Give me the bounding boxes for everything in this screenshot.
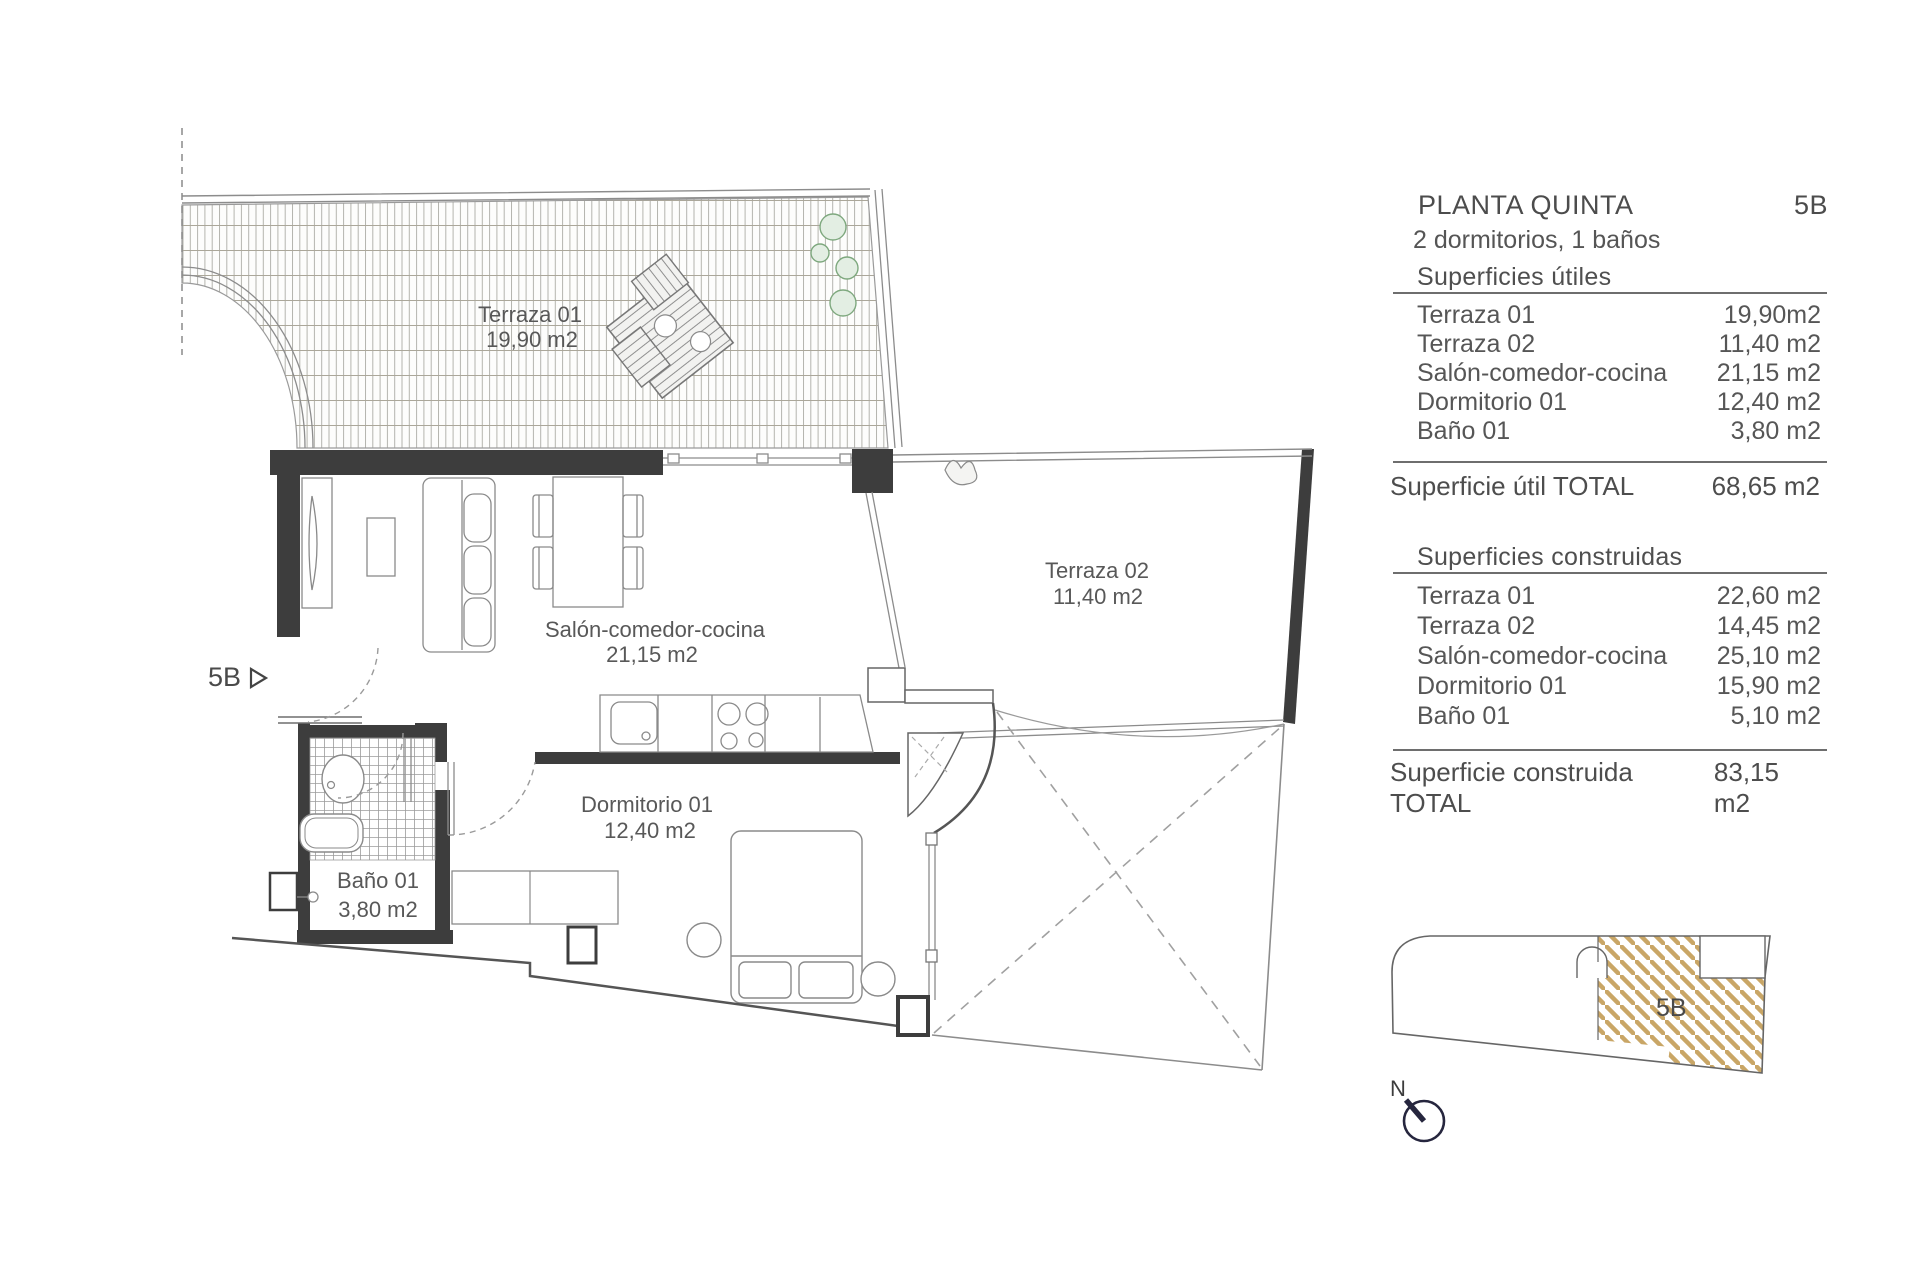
nightstand xyxy=(687,923,721,957)
basin xyxy=(322,755,364,803)
table-row: Dormitorio 01 12,40 m2 xyxy=(1393,388,1827,417)
wall-terrace-02-right xyxy=(1283,449,1314,724)
useful-surfaces-table: Terraza 01 19,90m2 Terraza 02 11,40 m2 S… xyxy=(1393,301,1827,446)
terrace-02-area: 11,40 m2 xyxy=(1053,584,1143,609)
coffee-table xyxy=(367,518,395,576)
terrace-02-glazing xyxy=(866,492,905,668)
living-room-name: Salón-comedor-cocina xyxy=(545,617,766,642)
roof-x-mark xyxy=(934,712,1282,1066)
built-surfaces-table: Terraza 01 22,60 m2 Terraza 02 14,45 m2 … xyxy=(1393,581,1827,731)
wardrobe xyxy=(452,871,618,924)
pillar xyxy=(270,873,297,910)
wall-living-left xyxy=(277,450,300,637)
railing-plant xyxy=(945,460,977,484)
bathroom-area: 3,80 m2 xyxy=(338,897,418,922)
pillar xyxy=(568,927,596,963)
bedroom-name: Dormitorio 01 xyxy=(581,792,713,817)
divider xyxy=(1393,292,1827,294)
entrance: 5B xyxy=(208,648,378,722)
surface-table-panel: PLANTA QUINTA 5B 2 dormitorios, 1 baños … xyxy=(1390,0,1830,800)
bed xyxy=(731,831,862,1003)
entrance-arrow-icon xyxy=(251,669,266,687)
wall-bath-bottom xyxy=(297,930,453,944)
built-total-row: Superficie construida TOTAL 83,15 m2 xyxy=(1390,757,1828,819)
sliding-door xyxy=(663,454,852,465)
dining-set xyxy=(533,477,643,607)
entrance-door-swing xyxy=(308,648,378,722)
terrace-01-name: Terraza 01 xyxy=(478,302,582,327)
living-room xyxy=(302,477,873,752)
table-row: Salón-comedor-cocina 21,15 m2 xyxy=(1393,359,1827,388)
panel-subtitle: 2 dormitorios, 1 baños xyxy=(1413,226,1660,255)
north-arrow: N xyxy=(1390,1076,1444,1141)
wall-bath-top xyxy=(300,725,417,738)
key-plan-arch xyxy=(1577,947,1607,978)
panel-title-row: PLANTA QUINTA 5B xyxy=(1418,190,1828,221)
bedroom-area: 12,40 m2 xyxy=(604,818,696,843)
key-plan-unit-label: 5B xyxy=(1656,994,1687,1022)
terrace-02-name: Terraza 02 xyxy=(1045,558,1149,583)
terrace-02-railing xyxy=(893,449,1312,462)
kitchen-counter xyxy=(600,695,873,752)
bedroom-door-swing xyxy=(448,762,535,835)
bathroom: Baño 01 3,80 m2 xyxy=(270,733,435,922)
table-row: Baño 01 3,80 m2 xyxy=(1393,417,1827,446)
divider xyxy=(1393,461,1827,463)
bedroom-window xyxy=(929,833,935,1000)
pillar xyxy=(898,997,928,1035)
tv-unit xyxy=(302,478,332,608)
table-row: Terraza 01 19,90m2 xyxy=(1393,301,1827,330)
divider xyxy=(1393,749,1827,751)
entrance-unit-label: 5B xyxy=(208,662,241,692)
table-row: Terraza 02 14,45 m2 xyxy=(1393,611,1827,641)
wall-living-top xyxy=(270,450,663,475)
unit-badge: 5B xyxy=(1794,190,1828,221)
sofa xyxy=(423,478,495,652)
terrace-01: Terraza 01 19,90 m2 xyxy=(182,128,902,448)
table-row: Terraza 01 22,60 m2 xyxy=(1393,581,1827,611)
divider xyxy=(1393,572,1827,574)
bedroom: Dormitorio 01 12,40 m2 xyxy=(448,762,937,1003)
living-room-area: 21,15 m2 xyxy=(606,642,698,667)
wall-pillar-top-right xyxy=(852,449,893,493)
terrace-01-area: 19,90 m2 xyxy=(486,327,578,352)
nightstand xyxy=(861,962,895,996)
page-title: PLANTA QUINTA xyxy=(1418,190,1634,221)
useful-total-row: Superficie útil TOTAL 68,65 m2 xyxy=(1390,471,1828,502)
table-row: Baño 01 5,10 m2 xyxy=(1393,701,1827,731)
table-row: Salón-comedor-cocina 25,10 m2 xyxy=(1393,641,1827,671)
useful-surfaces-heading: Superficies útiles xyxy=(1417,263,1611,292)
table-row: Terraza 02 11,40 m2 xyxy=(1393,330,1827,359)
key-plan: 5B xyxy=(1392,936,1770,1073)
bathroom-name: Baño 01 xyxy=(337,868,419,893)
built-surfaces-heading: Superficies construidas xyxy=(1417,543,1682,572)
north-letter: N xyxy=(1390,1076,1406,1101)
wall-bedroom-top xyxy=(535,752,900,764)
table-row: Dormitorio 01 15,90 m2 xyxy=(1393,671,1827,701)
